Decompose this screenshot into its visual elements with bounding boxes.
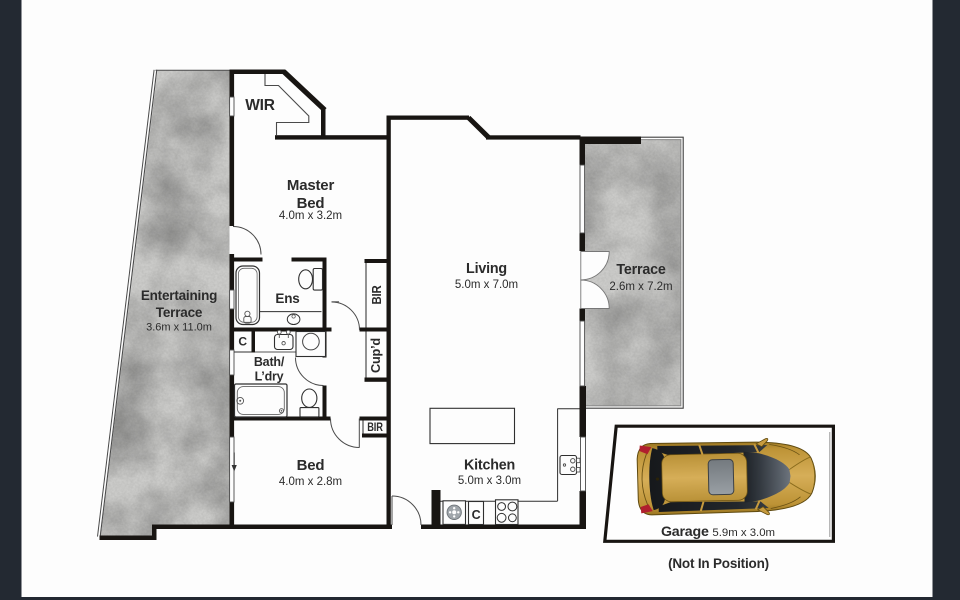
svg-text:Terrace: Terrace <box>616 262 665 278</box>
svg-text:5.0m x 7.0m: 5.0m x 7.0m <box>455 279 518 291</box>
svg-text:Entertaining: Entertaining <box>141 288 217 303</box>
svg-text:Cup’d: Cup’d <box>369 338 383 373</box>
svg-text:C: C <box>238 335 247 349</box>
svg-text:5.0m x 3.0m: 5.0m x 3.0m <box>458 475 521 487</box>
svg-text:BIR: BIR <box>370 285 384 304</box>
svg-text:Master: Master <box>287 177 335 194</box>
svg-text:Kitchen: Kitchen <box>464 458 515 474</box>
svg-text:WIR: WIR <box>245 97 275 114</box>
svg-text:Ens: Ens <box>275 291 299 306</box>
svg-text:Terrace: Terrace <box>156 305 203 320</box>
svg-text:2.6m x 7.2m: 2.6m x 7.2m <box>609 281 672 293</box>
svg-text:3.6m x 11.0m: 3.6m x 11.0m <box>146 322 212 334</box>
svg-text:Bath/: Bath/ <box>254 355 285 369</box>
svg-text:4.0m x 3.2m: 4.0m x 3.2m <box>279 210 342 222</box>
svg-text:Garage 5.9m x 3.0m: Garage 5.9m x 3.0m <box>661 524 775 540</box>
svg-text:Living: Living <box>466 261 507 277</box>
svg-text:BIR: BIR <box>367 422 383 434</box>
svg-text:Bed: Bed <box>297 457 325 474</box>
svg-text:C: C <box>472 508 481 522</box>
svg-text:4.0m x 2.8m: 4.0m x 2.8m <box>279 476 342 488</box>
svg-text:(Not In Position): (Not In Position) <box>668 556 769 571</box>
svg-text:L’dry: L’dry <box>255 370 284 384</box>
